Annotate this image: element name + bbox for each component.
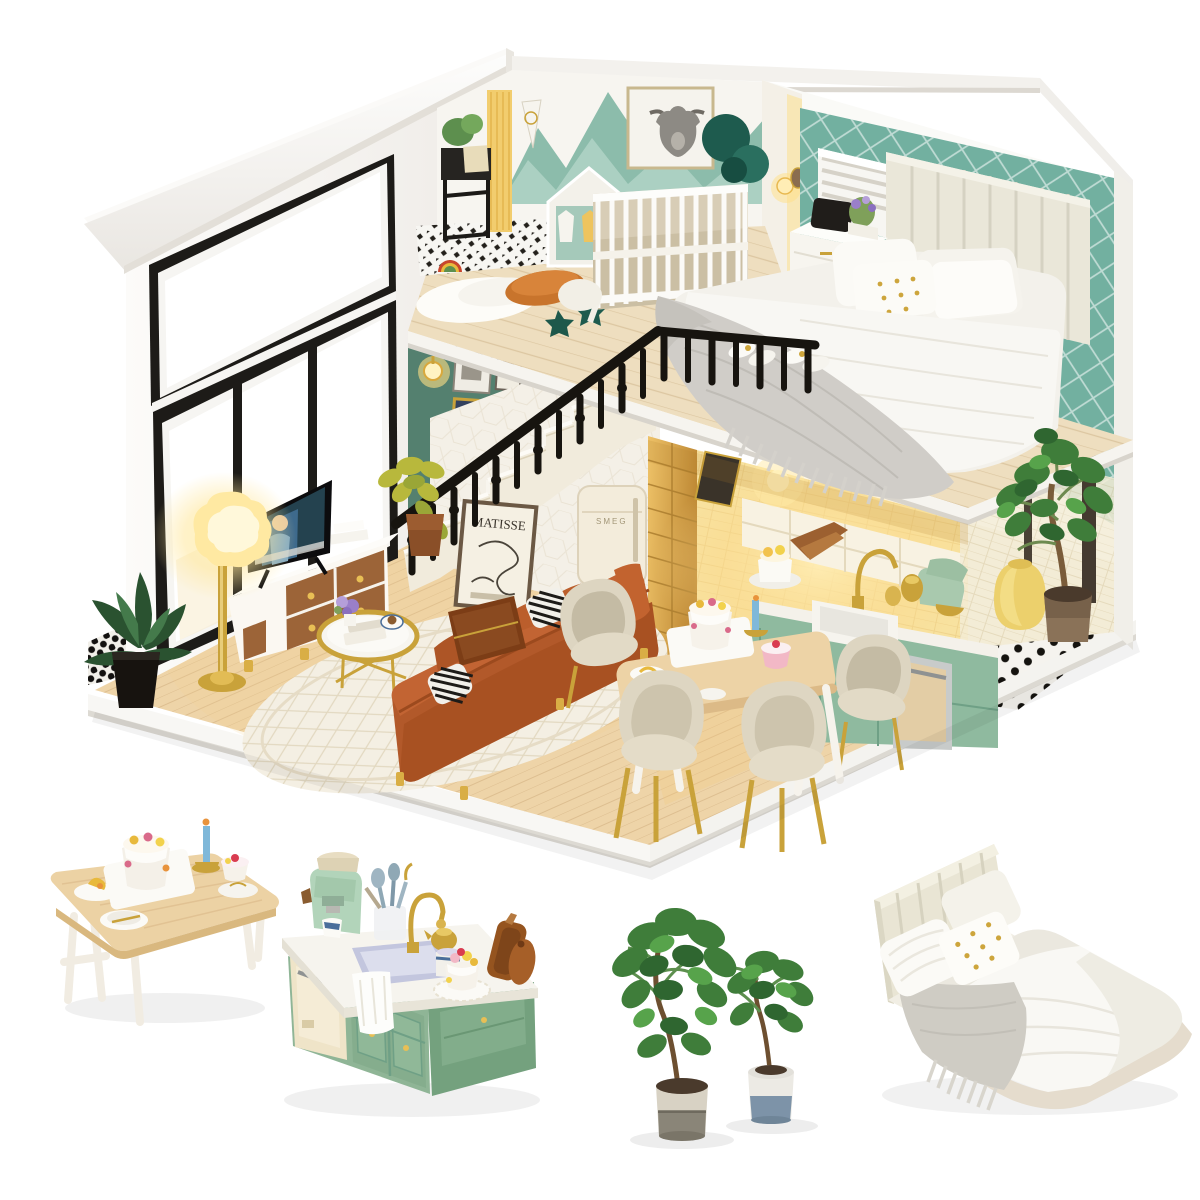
svg-text:SMEG: SMEG bbox=[596, 517, 628, 526]
